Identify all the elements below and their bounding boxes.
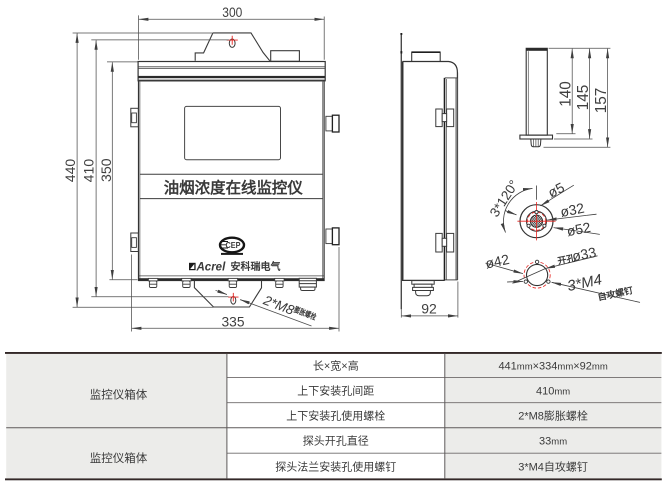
svg-text:长×宽×高: 长×宽×高 xyxy=(313,358,359,372)
svg-text:膨胀螺栓: 膨胀螺栓 xyxy=(292,304,318,322)
svg-text:410: 410 xyxy=(81,159,97,183)
svg-text:探头开孔直径: 探头开孔直径 xyxy=(303,434,369,448)
svg-text:监控仪箱体: 监控仪箱体 xyxy=(90,451,148,465)
svg-text:上下安装孔间距: 上下安装孔间距 xyxy=(297,383,374,397)
svg-text:ø32: ø32 xyxy=(559,200,586,220)
svg-text:335: 335 xyxy=(222,314,245,330)
svg-text:ø42: ø42 xyxy=(484,251,511,272)
svg-text:3*M4: 3*M4 xyxy=(566,271,604,295)
svg-text:440: 440 xyxy=(62,159,78,183)
svg-text:安科瑞电气: 安科瑞电气 xyxy=(231,260,281,273)
svg-text:410mm: 410mm xyxy=(536,385,570,397)
svg-text:探头法兰安装孔使用螺钉: 探头法兰安装孔使用螺钉 xyxy=(275,459,396,473)
svg-text:157: 157 xyxy=(593,88,610,114)
svg-text:350: 350 xyxy=(98,158,114,182)
svg-text:ø52: ø52 xyxy=(565,219,592,239)
svg-text:33mm: 33mm xyxy=(539,436,567,448)
svg-text:上下安装孔使用螺栓: 上下安装孔使用螺栓 xyxy=(286,408,385,422)
svg-text:300: 300 xyxy=(222,4,242,20)
svg-text:CEP: CEP xyxy=(226,240,241,250)
svg-text:92: 92 xyxy=(421,300,437,316)
svg-text:145: 145 xyxy=(575,85,592,111)
svg-text:140: 140 xyxy=(558,81,575,107)
svg-text:2*M8膨胀螺栓: 2*M8膨胀螺栓 xyxy=(518,408,588,422)
svg-text:Acrel: Acrel xyxy=(196,261,227,273)
svg-text:441mm×334mm×92mm: 441mm×334mm×92mm xyxy=(498,360,607,372)
svg-text:ø5: ø5 xyxy=(545,179,567,201)
svg-text:油烟浓度在线监控仪: 油烟浓度在线监控仪 xyxy=(164,178,303,197)
svg-text:3*M4自攻螺钉: 3*M4自攻螺钉 xyxy=(518,459,588,473)
svg-text:监控仪箱体: 监控仪箱体 xyxy=(90,388,148,402)
svg-text:ø33: ø33 xyxy=(571,244,598,264)
